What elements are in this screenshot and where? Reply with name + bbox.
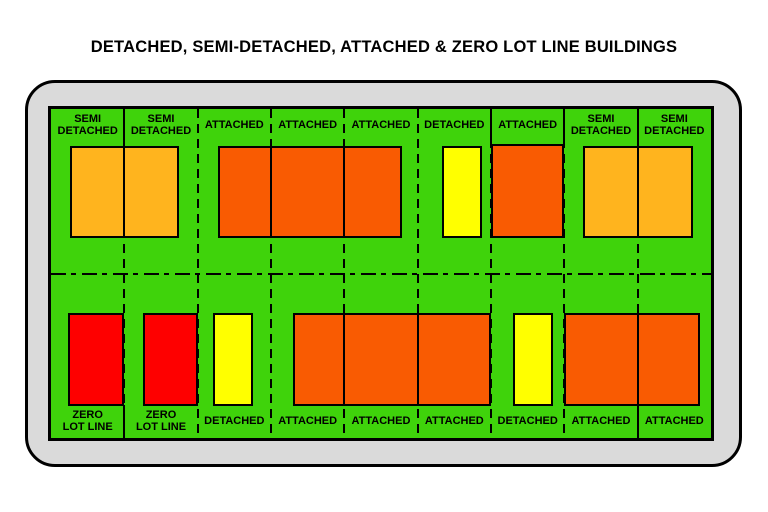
building-attached-row-top — [218, 146, 402, 238]
lot-label-line: DETACHED — [131, 125, 191, 138]
lot-label-line: ATTACHED — [352, 119, 411, 132]
building-detached-bottom-right — [513, 313, 553, 406]
lot-label-line: SEMI — [588, 113, 615, 126]
lot-label-line: DETACHED — [644, 125, 704, 138]
building-attached-top-single — [491, 144, 564, 238]
diagram-canvas: DETACHED, SEMI-DETACHED, ATTACHED & ZERO… — [0, 0, 768, 512]
lot-label-top-1: SEMIDETACHED — [51, 110, 124, 140]
diagram-title: DETACHED, SEMI-DETACHED, ATTACHED & ZERO… — [0, 38, 768, 57]
party-wall — [343, 148, 345, 236]
lot-label-line: ATTACHED — [278, 119, 337, 132]
lot-label-line: ATTACHED — [425, 415, 484, 428]
building-zero-lot-line-2 — [143, 313, 198, 406]
party-wall — [343, 315, 345, 404]
building-detached-top — [442, 146, 482, 238]
lot-label-top-5: ATTACHED — [344, 110, 417, 140]
party-wall — [123, 148, 125, 236]
lot-label-line: SEMI — [74, 113, 101, 126]
site-frame: SEMIDETACHEDSEMIDETACHEDATTACHEDATTACHED… — [25, 80, 742, 467]
lot-label-bottom-1: ZEROLOT LINE — [51, 406, 124, 436]
lot-label-top-9: SEMIDETACHED — [638, 110, 711, 140]
building-attached-row-bottom — [293, 313, 491, 406]
building-attached-pair-bottom — [564, 313, 700, 406]
lot-label-line: ZERO — [146, 409, 177, 422]
lot-label-bottom-9: ATTACHED — [638, 406, 711, 436]
lot-label-line: DETACHED — [424, 119, 484, 132]
lot-label-line: DETACHED — [498, 415, 558, 428]
site-plan: SEMIDETACHEDSEMIDETACHEDATTACHEDATTACHED… — [48, 106, 714, 441]
lot-label-line: LOT LINE — [136, 421, 186, 434]
lot-label-line: LOT LINE — [63, 421, 113, 434]
lot-label-top-2: SEMIDETACHED — [124, 110, 197, 140]
lot-label-bottom-2: ZEROLOT LINE — [124, 406, 197, 436]
lot-label-line: ATTACHED — [572, 415, 631, 428]
lot-label-top-3: ATTACHED — [198, 110, 271, 140]
street-centerline — [51, 273, 711, 275]
lot-label-line: ATTACHED — [352, 415, 411, 428]
lot-label-line: ATTACHED — [278, 415, 337, 428]
lot-label-bottom-7: DETACHED — [491, 406, 564, 436]
party-wall — [637, 148, 639, 236]
lot-label-line: DETACHED — [58, 125, 118, 138]
party-wall — [417, 315, 419, 404]
building-detached-bottom-left — [213, 313, 253, 406]
lot-label-bottom-6: ATTACHED — [418, 406, 491, 436]
lot-label-top-8: SEMIDETACHED — [564, 110, 637, 140]
lot-label-bottom-4: ATTACHED — [271, 406, 344, 436]
lot-label-top-6: DETACHED — [418, 110, 491, 140]
lot-label-bottom-8: ATTACHED — [564, 406, 637, 436]
lot-label-top-7: ATTACHED — [491, 110, 564, 140]
lot-label-line: ATTACHED — [645, 415, 704, 428]
lot-label-line: DETACHED — [204, 415, 264, 428]
lot-label-top-4: ATTACHED — [271, 110, 344, 140]
lot-label-line: DETACHED — [571, 125, 631, 138]
lot-label-bottom-5: ATTACHED — [344, 406, 417, 436]
party-wall — [270, 148, 272, 236]
lot-label-line: ATTACHED — [205, 119, 264, 132]
building-zero-lot-line-1 — [68, 313, 124, 406]
lot-label-bottom-3: DETACHED — [198, 406, 271, 436]
lot-label-line: ZERO — [72, 409, 103, 422]
building-semi-detached-pair-top-right — [583, 146, 693, 238]
lot-label-line: SEMI — [661, 113, 688, 126]
lot-label-line: ATTACHED — [498, 119, 557, 132]
lot-label-line: SEMI — [148, 113, 175, 126]
party-wall — [637, 315, 639, 404]
building-semi-detached-pair-top-left — [70, 146, 179, 238]
